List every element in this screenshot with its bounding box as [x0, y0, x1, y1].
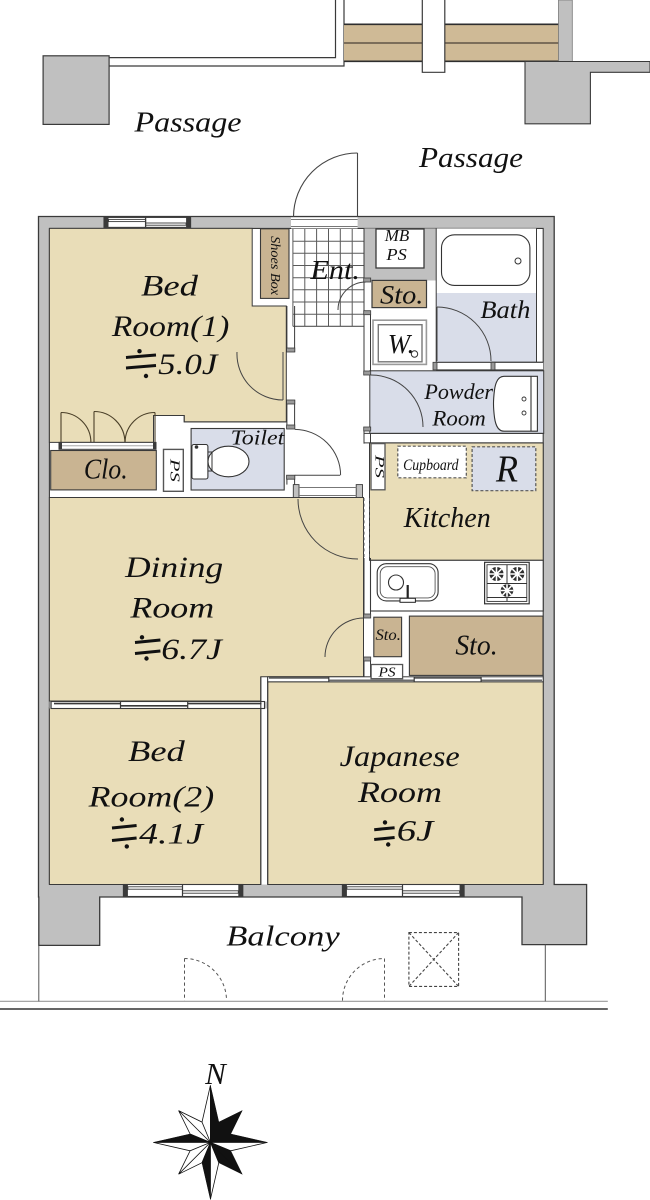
svg-text:Room: Room — [431, 405, 485, 430]
svg-text:6.7J: 6.7J — [161, 633, 224, 666]
svg-text:6J: 6J — [397, 815, 436, 848]
svg-text:Kitchen: Kitchen — [403, 503, 491, 534]
svg-text:Sto.: Sto. — [380, 281, 423, 310]
svg-text:Room: Room — [357, 776, 442, 809]
svg-text:PS: PS — [385, 245, 407, 264]
svg-text:5.0J: 5.0J — [158, 348, 219, 381]
svg-text:Room: Room — [129, 592, 214, 625]
svg-text:Japanese: Japanese — [340, 740, 460, 773]
svg-text:Bath: Bath — [480, 297, 530, 324]
svg-text:W.: W. — [388, 329, 415, 359]
svg-text:4.1J: 4.1J — [139, 817, 205, 850]
svg-text:Sto.: Sto. — [455, 631, 497, 662]
svg-text:PS: PS — [377, 665, 395, 680]
svg-text:Ent.: Ent. — [309, 255, 360, 285]
svg-text:Passage: Passage — [418, 142, 523, 174]
svg-text:Passage: Passage — [133, 107, 241, 139]
svg-text:Cupboard: Cupboard — [403, 457, 459, 474]
svg-text:Sto.: Sto. — [376, 627, 401, 644]
svg-text:Shoes Box: Shoes Box — [267, 236, 282, 296]
svg-text:Room(2): Room(2) — [87, 780, 214, 813]
svg-text:PS: PS — [167, 457, 182, 481]
svg-text:Balcony: Balcony — [226, 921, 340, 953]
svg-text:Dining: Dining — [124, 551, 223, 584]
svg-text:PS: PS — [372, 453, 387, 478]
svg-text:MB: MB — [384, 226, 410, 245]
svg-text:N: N — [204, 1056, 228, 1091]
svg-text:Toilet: Toilet — [231, 426, 286, 450]
svg-text:Room(1): Room(1) — [111, 310, 230, 343]
svg-text:Bed: Bed — [128, 735, 186, 768]
svg-text:R: R — [495, 449, 518, 491]
svg-text:Bed: Bed — [141, 269, 199, 302]
svg-text:Clo.: Clo. — [84, 455, 128, 486]
svg-text:Powder: Powder — [423, 379, 493, 404]
